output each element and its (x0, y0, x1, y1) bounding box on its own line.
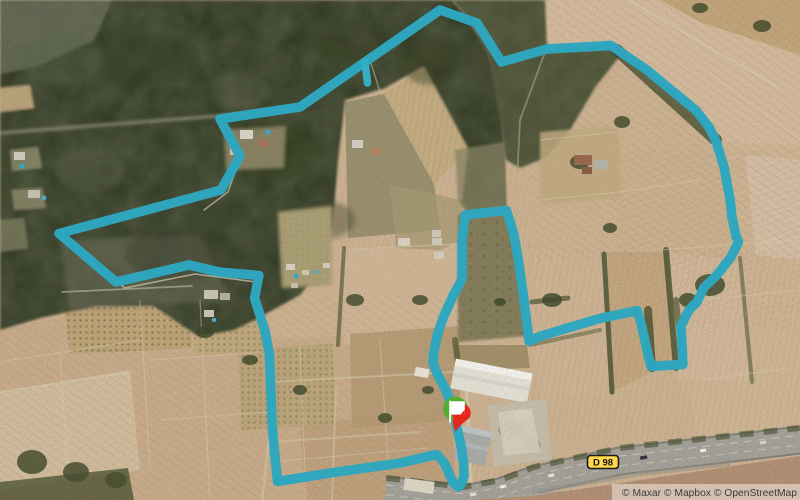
svg-text:© Maxar © Mapbox © OpenStreetM: © Maxar © Mapbox © OpenStreetMap (622, 488, 797, 499)
svg-text:D 98: D 98 (593, 458, 613, 469)
